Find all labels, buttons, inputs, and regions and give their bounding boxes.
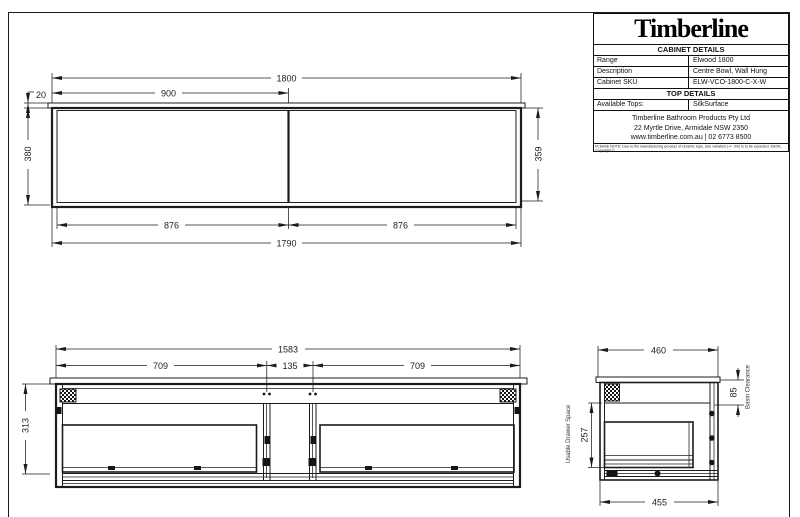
front-dim-internal-width: 1583 [278,345,298,355]
side-view-dimensions: 460 455 85 Basin Clearance 257 Usable Dr… [566,344,752,508]
wall-bracket-right [500,389,516,402]
basin-clearance-label: Basin Clearance [746,364,752,409]
company-street: 22 Myrtle Drive, Armidale NSW 2350 [594,124,788,134]
side-dim-usable-drawer: 257 [580,427,590,442]
side-dim-depth-bottom: 455 [652,498,667,508]
side-dim-depth-top: 460 [651,346,666,356]
plan-view-dimensions: 1800 900 20 380 359 876 876 1790 [23,72,545,249]
shelf-pin-bottom [709,460,715,466]
cabinet-sku-value: ELW-VCO-1800-C-X-W [688,78,788,88]
table-row-description: Description Centre Bowl, Wall Hung [594,66,788,77]
company-address-block: Timberline Bathroom Products Pty Ltd 22 … [594,110,788,143]
plan-dim-overall-bottom: 1790 [276,239,296,249]
available-tops-value: SilkSurface [688,100,788,110]
description-value: Centre Bowl, Wall Hung [688,67,788,77]
side-dim-basin-clearance: 85 [729,387,739,397]
cabinet-sku-label: Cabinet SKU [594,78,688,88]
shelf-pin-top [709,411,715,417]
side-view [596,377,720,480]
front-dim-centre-gap: 135 [282,361,297,371]
top-details-header: TOP DETAILS [594,88,788,99]
drawer-profile [605,422,694,468]
title-block: Timberline CABINET DETAILS Range Elwood … [593,13,789,152]
plan-dim-inner-depth: 359 [534,146,544,161]
usable-drawer-space-label: Usable Drawer Space [566,404,572,463]
shelf-pin-middle [709,435,715,441]
wall-bracket-left [60,389,76,402]
drawer-box-left [63,425,257,472]
disclaimer-text: PLEASE NOTE: Due to the manufacturing pr… [594,144,788,153]
front-view [50,378,527,487]
table-row-available-tops: Available Tops: SilkSurface [594,99,788,110]
front-dim-drawer-left: 709 [153,361,168,371]
disclaimer-note: PLEASE NOTE: Due to the manufacturing pr… [594,143,788,154]
plan-dim-centre: 900 [161,89,176,99]
drawing-sheet: 1800 900 20 380 359 876 876 1790 [0,0,800,517]
available-tops-label: Available Tops: [594,100,688,110]
plan-view [48,103,525,207]
wall-bracket-side [605,384,620,401]
range-label: Range [594,56,688,66]
front-dim-drawer-right: 709 [410,361,425,371]
cabinet-details-header: CABINET DETAILS [594,44,788,55]
plan-dim-top-thickness: 20 [36,90,46,100]
drawer-box-right [320,425,514,472]
table-row-cabinet-sku: Cabinet SKU ELW-VCO-1800-C-X-W [594,77,788,88]
company-contact: www.timberline.com.au | 02 6773 8500 [594,133,788,143]
plan-dim-overall-top: 1800 [276,74,296,84]
front-dim-height: 313 [21,418,31,433]
plan-dim-inner-right: 876 [393,221,408,231]
table-row-range: Range Elwood 1800 [594,55,788,66]
plan-dim-depth: 380 [23,146,33,161]
description-label: Description [594,67,688,77]
range-value: Elwood 1800 [688,56,788,66]
plan-dim-inner-left: 876 [164,221,179,231]
company-name: Timberline Bathroom Products Pty Ltd [594,114,788,124]
brand-logo: Timberline [594,14,788,44]
